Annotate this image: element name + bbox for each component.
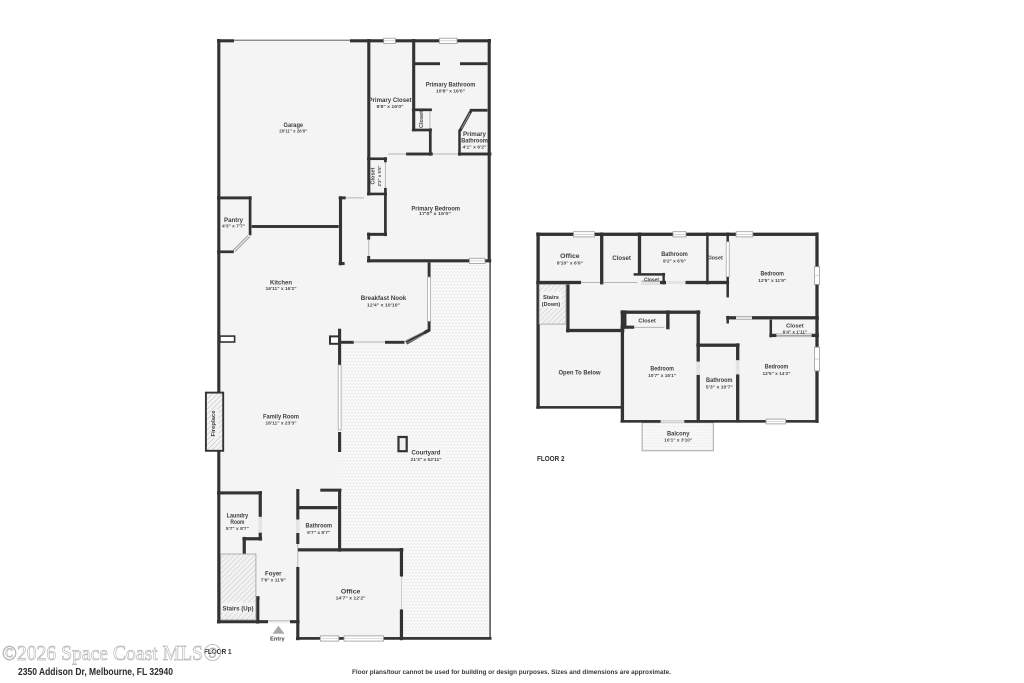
svg-text:9'2" x 6'9": 9'2" x 6'9" xyxy=(663,258,686,263)
svg-text:2'3" x 5'5": 2'3" x 5'5" xyxy=(377,165,382,186)
svg-text:Courtyard: Courtyard xyxy=(412,450,441,457)
svg-text:Bedroom: Bedroom xyxy=(760,271,784,278)
svg-text:12'5" x 14'2": 12'5" x 14'2" xyxy=(763,371,791,376)
svg-text:Closet: Closet xyxy=(371,167,377,184)
svg-text:10'8" x 16'0": 10'8" x 16'0" xyxy=(436,89,465,94)
svg-text:S: S xyxy=(208,646,216,662)
svg-text:16'11" x 23'3": 16'11" x 23'3" xyxy=(266,421,297,426)
svg-text:Floor plans/tour cannot be use: Floor plans/tour cannot be used for buil… xyxy=(352,669,671,676)
svg-text:(Down): (Down) xyxy=(542,302,561,308)
svg-text:Family Room: Family Room xyxy=(263,414,299,421)
svg-text:5'3" x 10'7": 5'3" x 10'7" xyxy=(706,384,733,389)
svg-text:8'10" x 6'9": 8'10" x 6'9" xyxy=(557,260,583,265)
svg-text:Bedroom: Bedroom xyxy=(650,366,674,373)
svg-text:5'7" x 8'7": 5'7" x 8'7" xyxy=(226,526,249,531)
svg-text:Balcony: Balcony xyxy=(667,430,690,437)
svg-text:Closet: Closet xyxy=(706,256,723,262)
svg-text:Closet: Closet xyxy=(644,278,659,284)
svg-text:Fireplace: Fireplace xyxy=(211,411,217,437)
svg-text:16'11" x 16'2": 16'11" x 16'2" xyxy=(266,286,297,291)
svg-text:Bathroom: Bathroom xyxy=(305,523,332,530)
svg-text:FLOOR 2: FLOOR 2 xyxy=(537,456,565,463)
svg-text:7'6" x 11'9": 7'6" x 11'9" xyxy=(261,577,286,582)
svg-text:Office: Office xyxy=(560,253,580,260)
svg-text:Primary Bathroom: Primary Bathroom xyxy=(426,82,476,89)
svg-text:Office: Office xyxy=(341,589,361,596)
svg-text:Bedroom: Bedroom xyxy=(765,364,789,371)
svg-text:Breakfast Nook: Breakfast Nook xyxy=(361,295,407,302)
svg-text:Open To Below: Open To Below xyxy=(559,370,602,377)
svg-text:10'1" x 3'10": 10'1" x 3'10" xyxy=(664,438,692,443)
svg-text:5'7" x 5'7": 5'7" x 5'7" xyxy=(307,530,330,535)
svg-text:8'8" x 16'0": 8'8" x 16'0" xyxy=(377,104,404,109)
svg-text:Bathroom: Bathroom xyxy=(461,138,488,145)
svg-text:Stairs: Stairs xyxy=(543,295,559,301)
svg-text:21'3" x 52'11": 21'3" x 52'11" xyxy=(411,457,442,462)
svg-text:Room: Room xyxy=(230,519,244,526)
svg-text:Bathroom: Bathroom xyxy=(661,251,688,258)
svg-text:Stairs (Up): Stairs (Up) xyxy=(223,606,254,613)
svg-text:20'11" x 26'0": 20'11" x 26'0" xyxy=(279,129,307,134)
svg-text:Closet: Closet xyxy=(638,319,656,325)
svg-text:©2026 Space Coast MLS: ©2026 Space Coast MLS xyxy=(2,641,203,665)
svg-text:6'4" x 1'11": 6'4" x 1'11" xyxy=(783,330,808,335)
svg-text:17'0" x 15'0": 17'0" x 15'0" xyxy=(419,211,451,216)
svg-text:14'7" x 12'2": 14'7" x 12'2" xyxy=(336,596,366,601)
svg-text:Closet: Closet xyxy=(419,111,425,128)
svg-text:4'1" x 6'2": 4'1" x 6'2" xyxy=(463,145,487,150)
svg-text:Entry: Entry xyxy=(270,637,285,643)
svg-text:12'5" x 11'9": 12'5" x 11'9" xyxy=(758,278,786,283)
svg-text:10'7" x 15'1": 10'7" x 15'1" xyxy=(648,373,676,378)
svg-text:4'3" x 7'7": 4'3" x 7'7" xyxy=(222,224,245,229)
svg-text:2350 Addison Dr, Melbourne, FL: 2350 Addison Dr, Melbourne, FL 32940 xyxy=(18,667,173,678)
svg-text:Closet: Closet xyxy=(612,255,631,262)
svg-text:12'4" x 10'10": 12'4" x 10'10" xyxy=(367,303,400,308)
svg-text:Bathroom: Bathroom xyxy=(706,377,733,384)
svg-text:Primary Closet: Primary Closet xyxy=(369,97,413,104)
